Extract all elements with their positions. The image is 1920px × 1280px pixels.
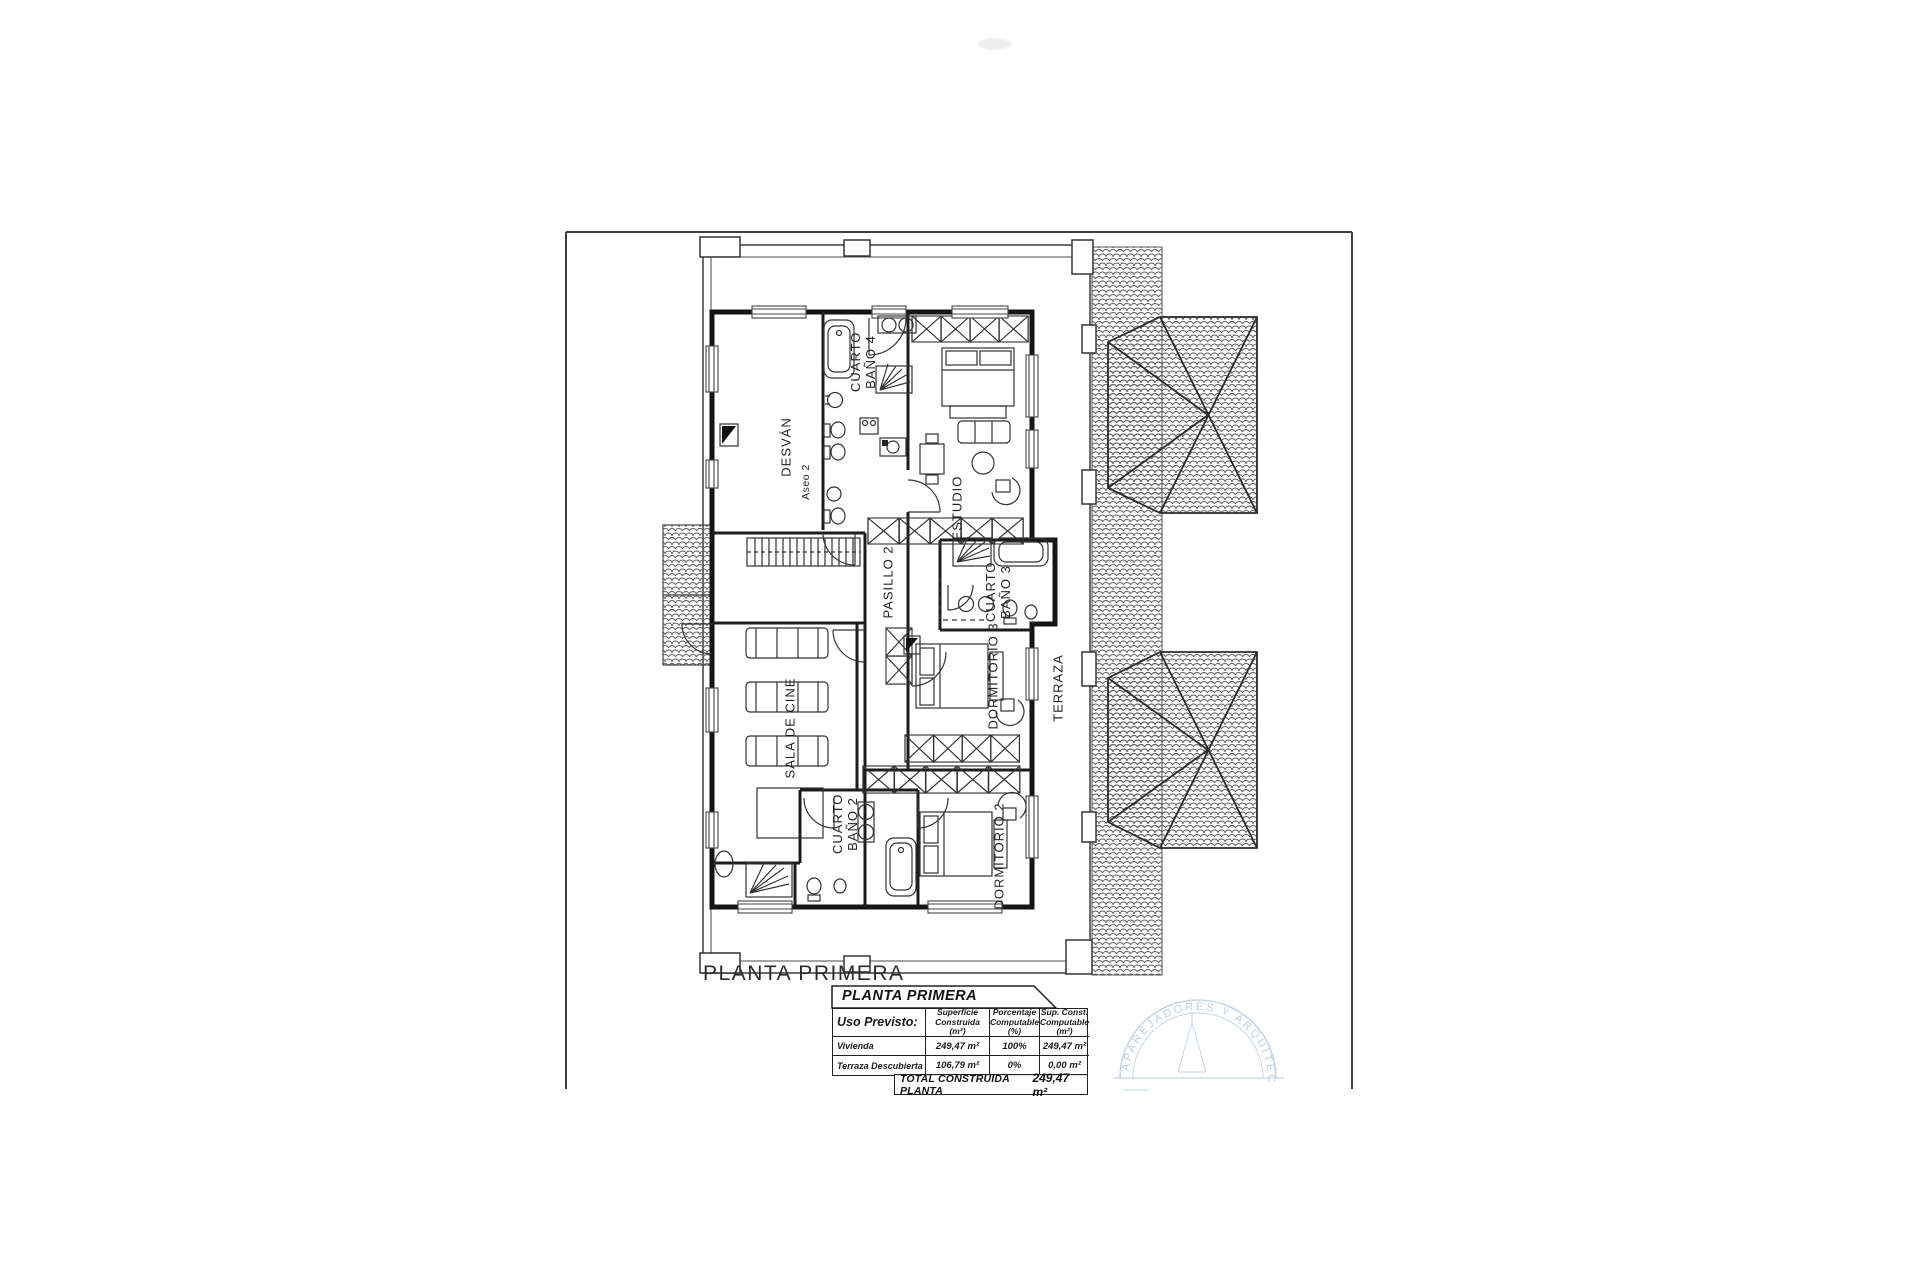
porch-roof-hatch <box>663 525 713 665</box>
stamp-arc-text: APAREJADORES Y ARQUITECTOS <box>0 0 1277 1085</box>
scanned-floor-plan-page: APAREJADORES Y ARQUITECTOS DESVÁN CUARTO… <box>0 0 1920 1280</box>
hip-roof-upper <box>1108 317 1257 513</box>
room-label-cuarto-bano-3: CUARTO BAÑO 3 <box>984 562 1014 622</box>
summary-table-total-row: TOTAL CONSTRUIDA PLANTA 249,47 m² <box>894 1074 1088 1095</box>
room-label-estudio: ESTUDIO <box>950 476 965 541</box>
room-label-pasillo-2: PASILLO 2 <box>881 545 896 618</box>
hip-roof-lower <box>1108 652 1257 848</box>
col-header-porcentaje: Porcentaje Computable (%) <box>990 1009 1040 1037</box>
room-label-cuarto-bano-2: CUARTO BAÑO 2 <box>831 794 861 854</box>
col-header-superficie: Superficie Construida (m²) <box>926 1009 990 1037</box>
room-label-dormitorio-2: DORMITORIO 2 <box>992 802 1007 909</box>
col-header-sup-const: Sup. Const. Computable (m²) <box>1040 1009 1089 1037</box>
summary-table-title: PLANTA PRIMERA <box>842 988 977 1004</box>
room-label-aseo-2: Aseo 2 <box>800 464 812 500</box>
svg-text:APAREJADORES Y ARQUITECTOS: APAREJADORES Y ARQUITECTOS <box>0 0 1277 1085</box>
total-value: 249,47 m² <box>1032 1071 1087 1099</box>
row-vivienda-superficie: 249,47 m² <box>926 1037 990 1056</box>
row-vivienda-sup-const: 249,47 m² <box>1040 1037 1089 1056</box>
row-vivienda-label: Vivienda <box>833 1037 926 1056</box>
summary-table: Uso Previsto: Superficie Construida (m²)… <box>832 1008 1088 1076</box>
room-label-cuarto-bano-4: CUARTO BAÑO 4 <box>849 332 879 392</box>
total-label: TOTAL CONSTRUIDA PLANTA <box>895 1073 1032 1097</box>
room-label-sala-de-cine: SALA DE CINE <box>783 678 798 779</box>
plan-caption: PLANTA PRIMERA <box>703 962 905 986</box>
room-label-terraza: TERRAZA <box>1051 654 1066 722</box>
col-header-uso-previsto: Uso Previsto: <box>833 1009 926 1037</box>
scan-smudge <box>978 38 1012 50</box>
room-label-desvan: DESVÁN <box>779 417 794 476</box>
row-vivienda-porcentaje: 100% <box>990 1037 1040 1056</box>
professional-stamp: APAREJADORES Y ARQUITECTOS <box>0 0 1284 1090</box>
room-label-dormitorio-3: DORMITORIO 3 <box>986 622 1001 729</box>
